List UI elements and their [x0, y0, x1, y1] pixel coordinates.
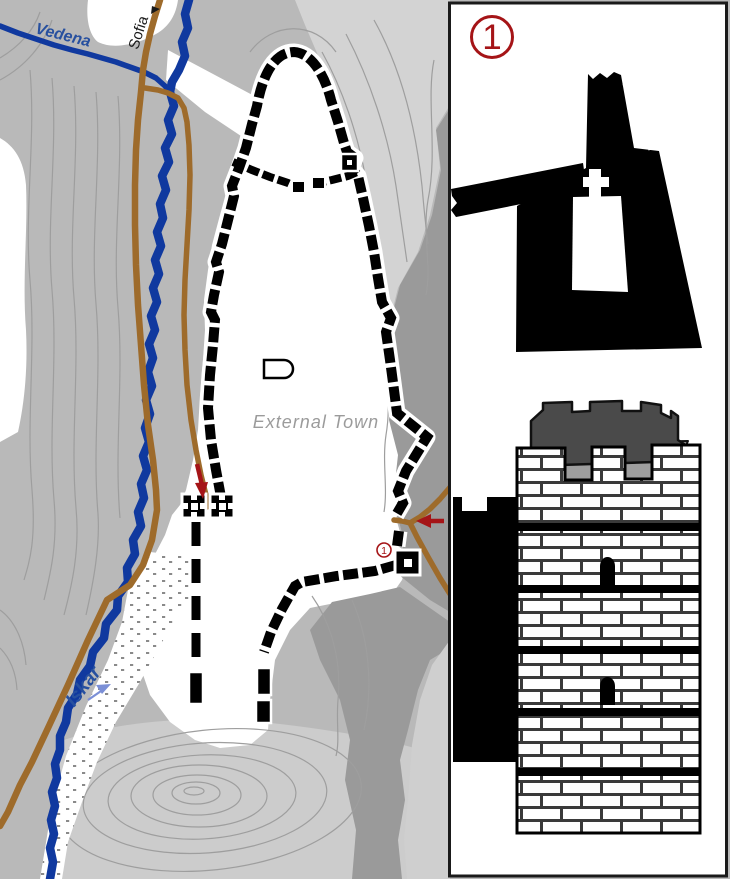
horseshoe-building: [264, 360, 293, 378]
white-left-strip: [0, 138, 27, 442]
west-gate-tower-right: [210, 494, 234, 518]
tower-window-upper: [600, 557, 615, 585]
north-wall-tower: [341, 154, 358, 171]
elevation-curtain-wall: [453, 497, 517, 762]
detail-panel: 1: [450, 3, 727, 876]
panel-marker-1: 1: [472, 17, 513, 58]
panel-marker-1-number: 1: [482, 18, 501, 57]
fortress-map-figure: Vedena Sofia Iskar External Town 1 1: [0, 0, 730, 879]
external-town-label: External Town: [253, 412, 379, 432]
southeast-corner-tower: [395, 550, 420, 575]
map-marker-1-number: 1: [381, 545, 387, 557]
plan-inner-chamber: [572, 196, 628, 292]
tower-window-lower: [600, 677, 615, 705]
